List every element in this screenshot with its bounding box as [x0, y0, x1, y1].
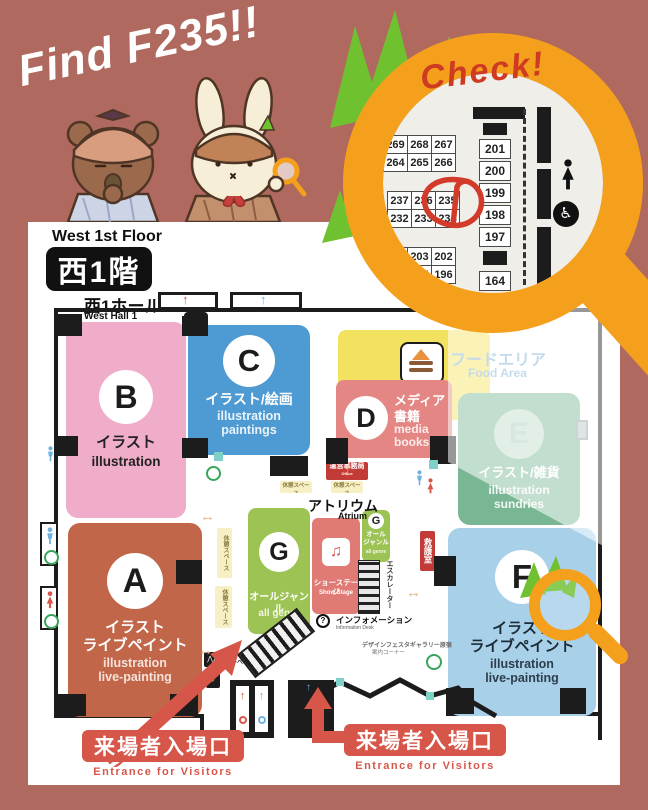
flow-arrow: ↕ — [344, 462, 352, 479]
section-d-label-en2: books — [394, 435, 429, 449]
flow-arrow: ↔ — [406, 584, 421, 601]
rest-space-badge: 休憩スペースRest Space — [331, 481, 363, 493]
section-g2-label-en: all genre — [362, 549, 390, 555]
hall-wall-left — [54, 308, 58, 718]
wall-block — [176, 560, 202, 584]
section-c-label-en1: illustration — [188, 409, 310, 424]
wall-block — [270, 456, 308, 476]
wall-block — [58, 694, 86, 716]
recycle-icon — [44, 550, 59, 565]
stage-label-en: Show Stage — [312, 590, 360, 597]
male-restroom-icon — [46, 446, 55, 462]
recycle-icon — [206, 466, 221, 481]
water-icon — [429, 460, 438, 469]
entrance-badge-left: 来場者入場口 — [82, 730, 244, 762]
up-arrow-blue-icon: ↑ — [260, 292, 267, 307]
rest-space-badge: 休憩スペース — [217, 528, 232, 578]
section-d-letter: D — [344, 396, 388, 440]
music-icon: ♫ — [322, 538, 350, 566]
poster: Find F235!! — [0, 0, 648, 810]
floor-title-en: West 1st Floor — [52, 228, 162, 246]
flow-arrow: ↔ — [200, 508, 215, 525]
food-icon — [400, 342, 444, 384]
section-c-letter: C — [223, 335, 275, 387]
section-b: B イラスト illustration — [66, 322, 186, 518]
entrance-subtitle-right: Entrance for Visitors — [344, 760, 506, 772]
section-f-label-jp2: ライブペイント — [448, 638, 596, 656]
escalator-hatch — [358, 560, 380, 614]
section-g2-label-jp2: ジャンル — [362, 539, 390, 547]
wall-block — [560, 688, 586, 714]
male-restroom-icon — [45, 527, 55, 545]
female-restroom-icon — [45, 591, 55, 609]
info-label-en: Information Desk — [336, 625, 374, 631]
wall-block — [434, 556, 456, 586]
detective-mascots — [38, 76, 323, 224]
wall-block — [326, 438, 348, 464]
recycle-icon — [426, 654, 442, 670]
rest-space-badge: 休憩スペースRest Space — [280, 481, 312, 493]
recycle-icon — [44, 614, 59, 629]
section-b-label-en: illustration — [66, 454, 186, 470]
section-d-label-en1: media — [394, 422, 429, 436]
wall-block — [56, 314, 82, 336]
male-restroom-icon — [415, 470, 424, 486]
bear-character — [68, 110, 158, 222]
section-b-letter: B — [99, 370, 153, 424]
entrance-badge-right: 来場者入場口 — [344, 724, 506, 756]
section-c-label-jp: イラスト/絵画 — [188, 391, 310, 408]
water-icon — [214, 452, 223, 461]
hall-subtitle-en: West Hall 1 — [84, 311, 137, 322]
section-c-label-en2: paintings — [188, 423, 310, 438]
section-b-label-jp: イラスト — [66, 434, 186, 452]
wall-block — [54, 436, 78, 456]
info-icon: ? — [316, 614, 330, 628]
facility-box — [40, 522, 58, 566]
floor-badge-jp: 西1階 — [46, 247, 152, 291]
wall-block — [182, 438, 208, 458]
section-a-letter: A — [107, 553, 163, 609]
gallery-note-line2: 案内コーナー — [372, 648, 405, 656]
facility-box — [40, 586, 58, 630]
atrium-label-en: Atrium — [338, 511, 367, 521]
first-aid-badge: 救護室 — [420, 531, 435, 571]
wall-block — [182, 316, 208, 336]
show-stage: ♫ ショーステージ Show Stage — [312, 518, 360, 614]
small-magnifier-lens — [529, 569, 601, 641]
entrance-subtitle-left: Entrance for Visitors — [82, 766, 244, 778]
section-g-letter: G — [259, 532, 299, 572]
section-c: C イラスト/絵画 illustration paintings — [188, 325, 310, 455]
rabbit-character — [186, 77, 304, 222]
female-restroom-icon — [426, 478, 435, 494]
section-g2-label-jp1: オール — [362, 531, 390, 539]
up-arrow-red-icon: ↑ — [182, 292, 189, 307]
